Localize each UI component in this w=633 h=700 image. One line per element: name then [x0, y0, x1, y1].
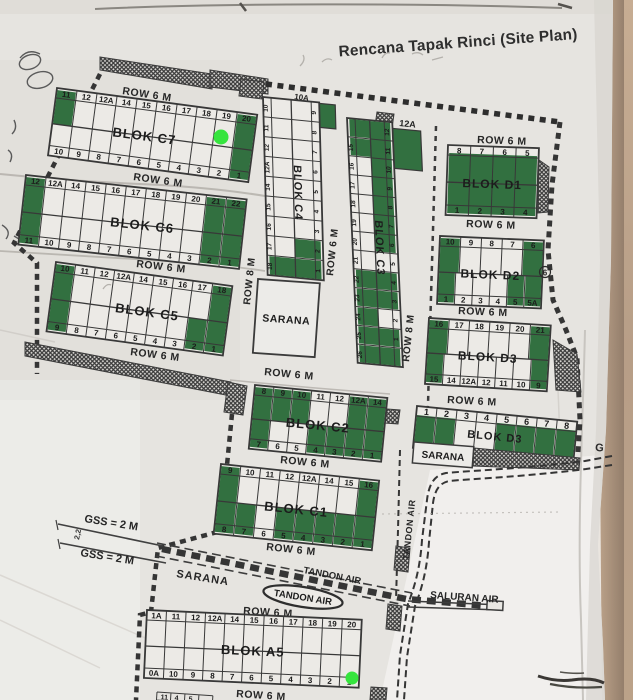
svg-text:12: 12: [285, 472, 295, 482]
svg-text:8: 8: [564, 420, 570, 430]
svg-text:18: 18: [475, 322, 485, 332]
svg-text:14: 14: [324, 476, 334, 486]
svg-text:12: 12: [81, 92, 92, 102]
svg-text:18: 18: [308, 618, 318, 627]
svg-text:14: 14: [447, 376, 457, 386]
svg-text:22: 22: [353, 275, 360, 283]
svg-text:15: 15: [429, 375, 439, 385]
svg-text:18: 18: [217, 285, 228, 295]
svg-text:10: 10: [516, 380, 526, 390]
svg-text:12: 12: [31, 177, 41, 187]
svg-text:10: 10: [245, 468, 255, 478]
svg-text:10: 10: [446, 237, 456, 246]
svg-text:12A: 12A: [399, 118, 417, 130]
svg-text:1A: 1A: [151, 611, 162, 620]
svg-text:10: 10: [263, 104, 270, 112]
svg-text:16: 16: [266, 223, 273, 231]
svg-text:12A: 12A: [48, 179, 64, 190]
svg-text:10: 10: [54, 147, 65, 157]
svg-text:12A: 12A: [461, 377, 476, 387]
svg-text:6: 6: [543, 269, 548, 278]
svg-text:20: 20: [352, 237, 359, 245]
svg-text:20: 20: [241, 114, 252, 124]
svg-text:11: 11: [172, 612, 181, 621]
svg-text:10: 10: [386, 166, 393, 174]
svg-text:18: 18: [201, 108, 212, 118]
svg-text:11: 11: [265, 470, 275, 480]
svg-text:BLOK C4: BLOK C4: [291, 164, 304, 220]
svg-text:17: 17: [289, 617, 299, 626]
svg-text:14: 14: [121, 98, 132, 108]
svg-text:G: G: [595, 442, 604, 454]
svg-text:12: 12: [191, 613, 201, 622]
svg-text:14: 14: [265, 183, 272, 191]
svg-text:16: 16: [178, 280, 189, 290]
svg-text:14: 14: [373, 398, 383, 408]
svg-text:12: 12: [99, 269, 110, 279]
svg-text:7: 7: [544, 419, 550, 429]
svg-text:12A: 12A: [264, 161, 271, 174]
svg-text:11: 11: [499, 379, 509, 389]
svg-text:19: 19: [351, 219, 358, 227]
svg-text:5: 5: [504, 415, 510, 425]
svg-text:17: 17: [349, 181, 356, 189]
svg-text:19: 19: [171, 192, 181, 202]
svg-text:12A: 12A: [208, 614, 223, 624]
svg-text:4: 4: [174, 695, 178, 700]
svg-text:18: 18: [350, 200, 357, 208]
svg-text:18: 18: [151, 190, 161, 200]
svg-text:12: 12: [384, 128, 391, 136]
svg-text:BLOK C3: BLOK C3: [372, 220, 386, 276]
svg-text:23: 23: [354, 294, 361, 302]
svg-text:3: 3: [464, 411, 470, 421]
svg-text:1: 1: [424, 407, 430, 417]
svg-text:15: 15: [265, 203, 272, 211]
svg-text:15: 15: [158, 277, 169, 287]
svg-text:5: 5: [188, 696, 192, 700]
svg-text:14: 14: [71, 181, 81, 191]
svg-text:2: 2: [444, 409, 450, 419]
svg-text:BLOK A5: BLOK A5: [221, 642, 285, 660]
svg-text:17: 17: [131, 188, 141, 198]
svg-text:25: 25: [356, 331, 363, 339]
svg-text:15: 15: [91, 183, 101, 193]
svg-text:21: 21: [353, 256, 360, 264]
svg-text:19: 19: [221, 111, 232, 121]
svg-text:10: 10: [169, 670, 179, 679]
svg-text:17: 17: [266, 242, 273, 250]
svg-text:10: 10: [44, 238, 54, 248]
svg-text:BLOK D2: BLOK D2: [460, 266, 520, 283]
svg-text:0A: 0A: [149, 669, 160, 678]
svg-text:16: 16: [111, 185, 121, 195]
svg-text:16: 16: [348, 162, 355, 170]
svg-text:12: 12: [481, 378, 491, 388]
svg-text:16: 16: [161, 103, 172, 113]
svg-text:11: 11: [160, 694, 168, 700]
svg-text:16: 16: [364, 480, 374, 490]
svg-text:24: 24: [355, 313, 362, 321]
svg-text:21: 21: [211, 197, 221, 207]
svg-text:4: 4: [484, 413, 490, 423]
svg-text:21: 21: [536, 326, 546, 336]
svg-text:16: 16: [269, 617, 279, 626]
svg-text:15: 15: [249, 616, 259, 625]
svg-text:12: 12: [335, 394, 345, 404]
svg-text:12A: 12A: [302, 474, 318, 485]
svg-text:BLOK D1: BLOK D1: [462, 176, 522, 192]
svg-text:11: 11: [316, 392, 326, 402]
svg-text:12A: 12A: [351, 395, 367, 405]
svg-text:17: 17: [181, 106, 192, 116]
svg-text:11: 11: [263, 124, 270, 132]
svg-text:11: 11: [24, 236, 34, 246]
svg-text:14: 14: [138, 274, 149, 284]
svg-text:14: 14: [230, 615, 240, 624]
svg-text:22: 22: [231, 199, 241, 209]
svg-text:16: 16: [434, 319, 444, 329]
svg-text:17: 17: [454, 321, 464, 331]
svg-text:20: 20: [515, 324, 525, 334]
svg-text:11: 11: [385, 147, 392, 155]
svg-text:26: 26: [357, 350, 364, 358]
svg-text:19: 19: [495, 323, 505, 333]
svg-text:12: 12: [264, 143, 271, 151]
svg-text:ROW 6 M: ROW 6 M: [458, 305, 508, 319]
svg-text:20: 20: [347, 620, 357, 629]
svg-text:15: 15: [344, 478, 354, 488]
svg-text:19: 19: [328, 619, 338, 628]
svg-text:6: 6: [524, 417, 530, 427]
svg-text:18: 18: [267, 262, 274, 270]
svg-text:10: 10: [60, 264, 71, 274]
svg-text:10: 10: [297, 390, 307, 400]
svg-text:ROW 6 M: ROW 6 M: [466, 218, 516, 232]
svg-text:20: 20: [191, 194, 201, 204]
svg-text:15: 15: [348, 143, 355, 151]
svg-text:5A: 5A: [527, 298, 538, 307]
svg-text:17: 17: [197, 283, 208, 293]
svg-text:15: 15: [141, 100, 152, 110]
